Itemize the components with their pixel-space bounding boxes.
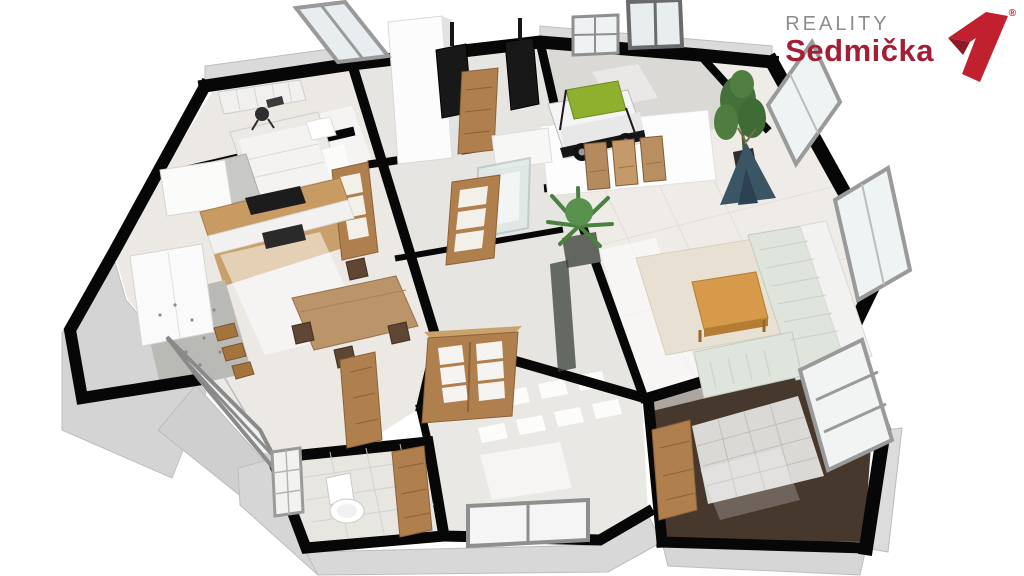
kids-room-glazed-door — [628, 0, 682, 48]
boiler-right — [505, 18, 539, 110]
seven-logo: ® — [942, 8, 1014, 86]
floor-plan-page: REALITY Sedmička ® — [0, 0, 1024, 576]
seven-icon — [942, 8, 1014, 86]
corridor-door — [340, 352, 382, 448]
bathroom-door — [446, 175, 500, 265]
brand-line2: Sedmička — [785, 35, 934, 68]
registered-mark: ® — [1009, 8, 1016, 19]
fridge — [130, 244, 214, 346]
brand-line1: REALITY — [785, 14, 934, 35]
tech-room-window — [573, 15, 618, 55]
tech-room-door — [458, 68, 498, 154]
storage-room-door — [652, 420, 697, 520]
floor-plan-render — [0, 0, 1024, 576]
brand-logo: REALITY Sedmička ® — [785, 8, 1014, 86]
hall-double-door — [422, 326, 522, 423]
entrance-window — [468, 500, 588, 546]
wc-window — [272, 448, 303, 516]
brand-logo-text: REALITY Sedmička — [785, 8, 934, 68]
